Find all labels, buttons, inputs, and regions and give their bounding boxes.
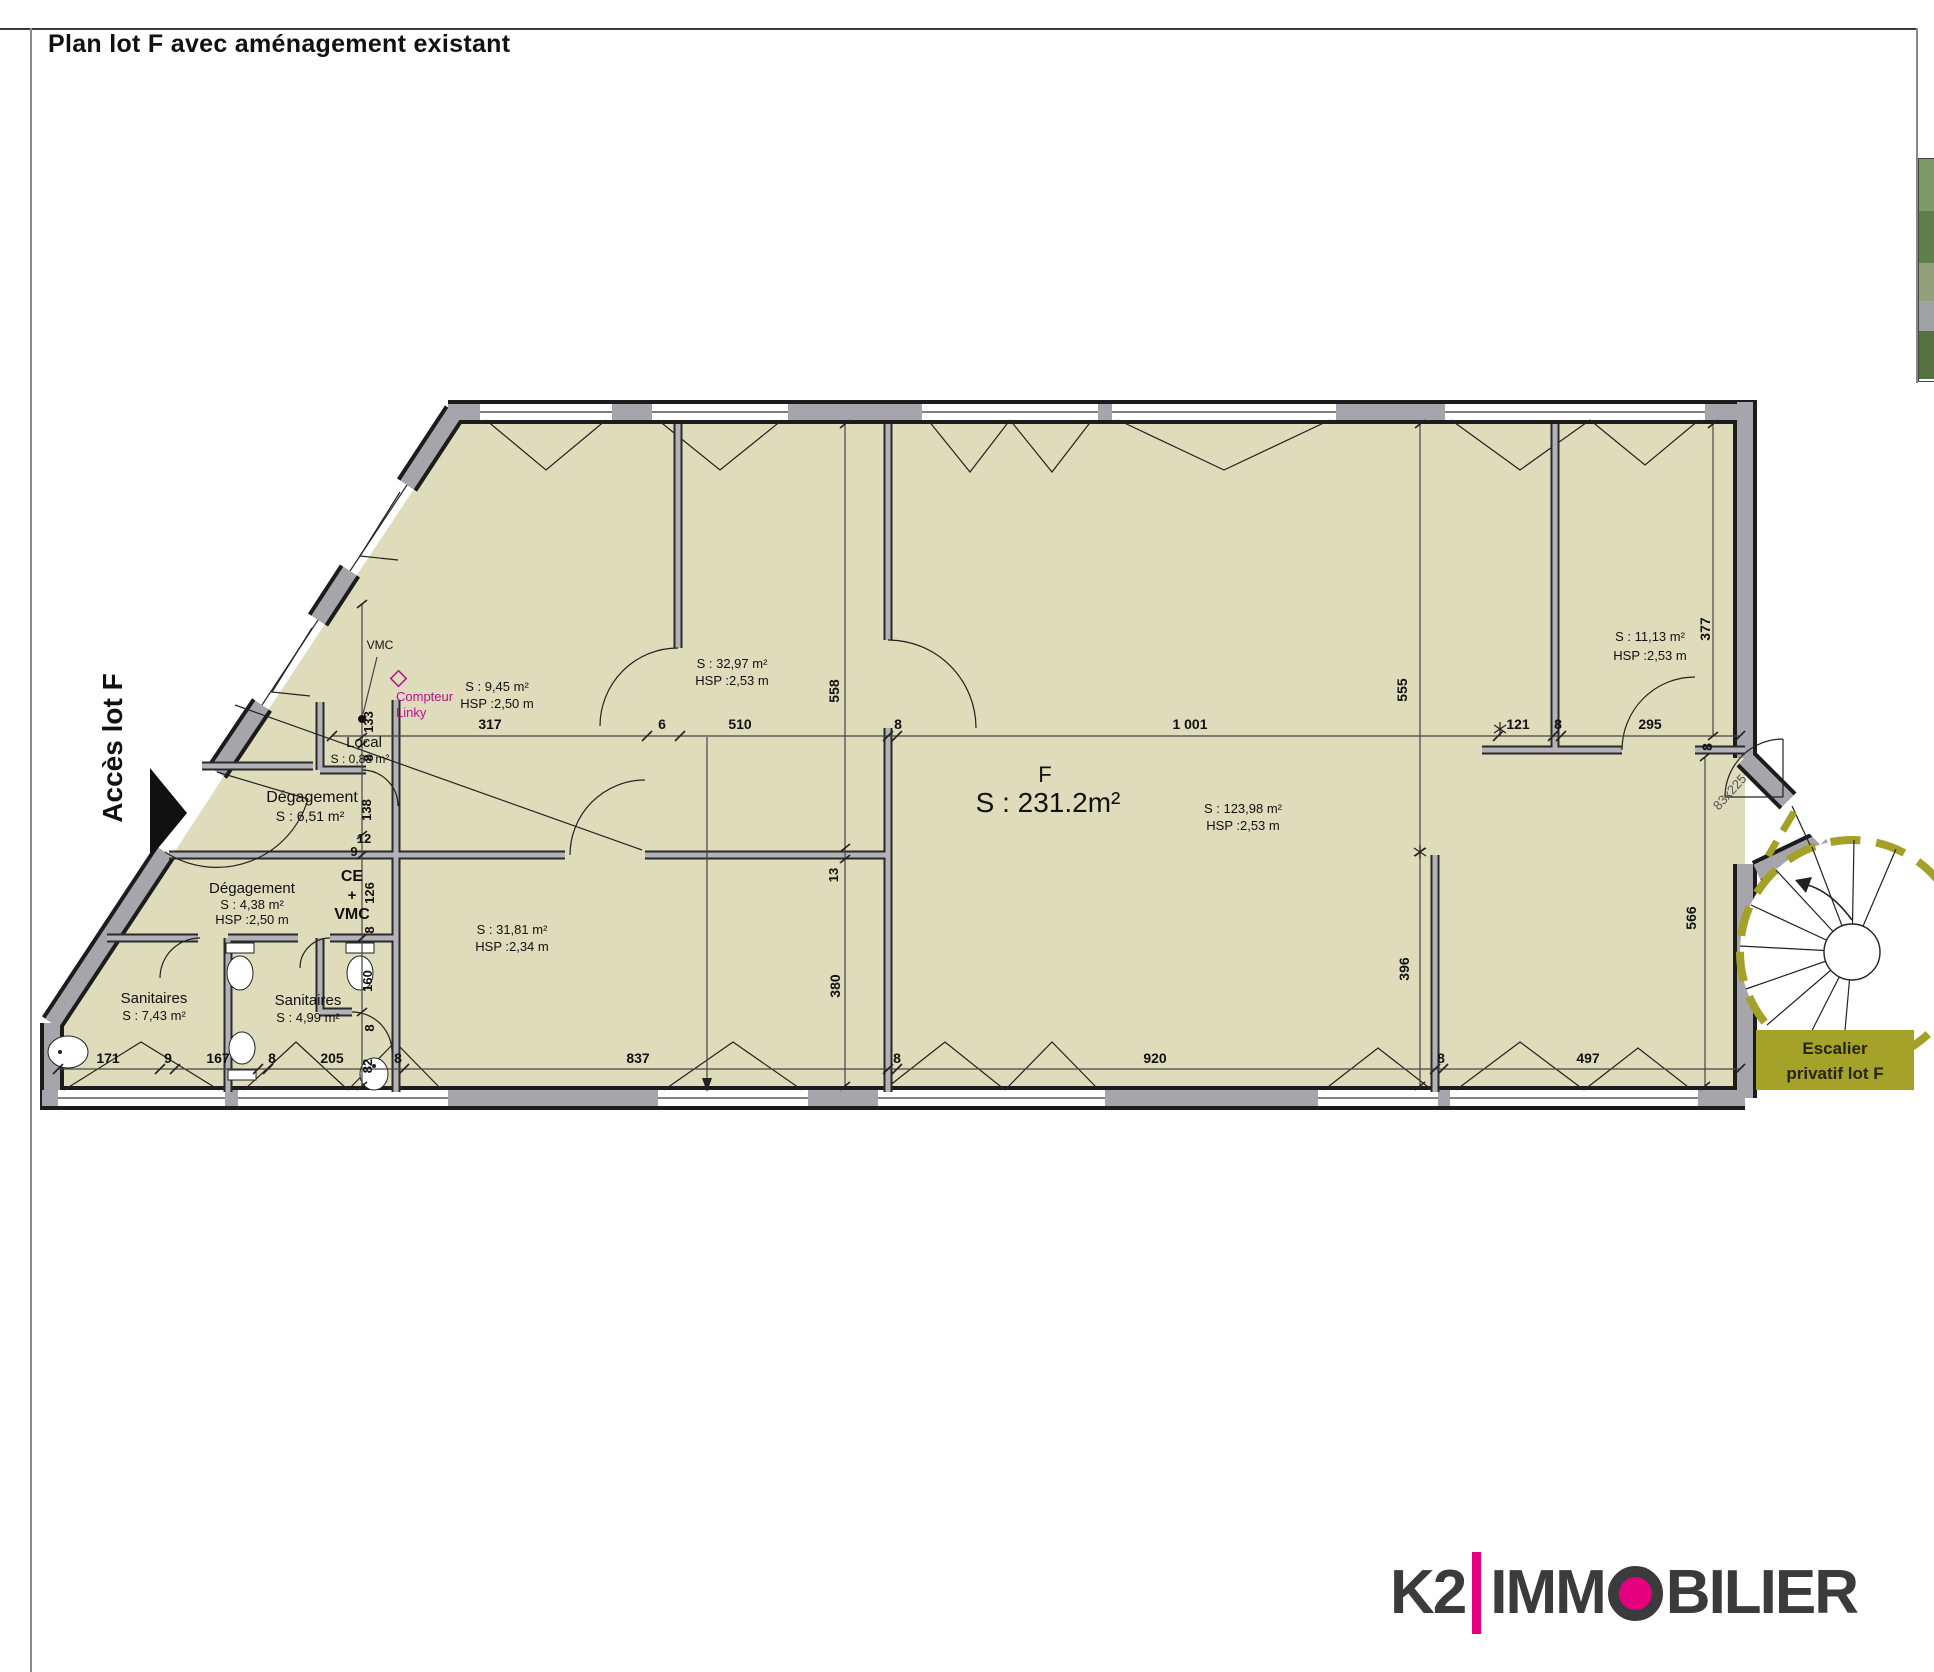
compteur-linky-2: Linky xyxy=(396,705,427,720)
dim-12: 12 xyxy=(357,831,371,846)
dim-8h: 8 xyxy=(361,754,376,761)
dim-160: 160 xyxy=(360,970,375,992)
dim-82: 82 xyxy=(360,1059,375,1073)
dim-9a: 9 xyxy=(164,1050,172,1066)
dim-1001: 1 001 xyxy=(1172,716,1207,732)
dim-295: 295 xyxy=(1638,716,1662,732)
dim-121: 121 xyxy=(1506,716,1530,732)
room-ce-label: CE xyxy=(341,868,364,885)
dim-8f: 8 xyxy=(893,1050,901,1066)
dim-8a: 8 xyxy=(894,716,902,732)
dim-13: 13 xyxy=(826,868,841,882)
dim-920: 920 xyxy=(1143,1050,1167,1066)
room-945-area: S : 9,45 m² xyxy=(465,679,529,694)
dim-377: 377 xyxy=(1697,617,1713,641)
dim-8d: 8 xyxy=(268,1050,276,1066)
room-12398-area: S : 123,98 m² xyxy=(1204,801,1283,816)
dim-8e: 8 xyxy=(394,1050,402,1066)
sink-icon xyxy=(48,1036,88,1068)
logo-pink-bar xyxy=(1472,1552,1481,1634)
dim-167: 167 xyxy=(206,1050,230,1066)
dim-138: 138 xyxy=(359,799,374,821)
room-3181-area: S : 31,81 m² xyxy=(477,922,548,937)
access-label: Accès lot F xyxy=(97,673,128,822)
room-degagement2-area: S : 4,38 m² xyxy=(220,897,284,912)
logo-imm: IMM xyxy=(1490,1562,1605,1624)
logo-bilier: BILIER xyxy=(1666,1562,1857,1624)
lot-letter: F xyxy=(1038,762,1051,787)
logo-k2: K2 xyxy=(1390,1562,1465,1624)
dim-8i: 8 xyxy=(362,926,377,933)
floor-plan-drawing: Accès lot FLocalS : 0,88 m²DégagementS :… xyxy=(0,0,1934,1672)
room-3297-hsp: HSP :2,53 m xyxy=(695,673,768,688)
room-1113-area: S : 11,13 m² xyxy=(1615,629,1686,644)
stair-label-line2: privatif lot F xyxy=(1756,1062,1914,1087)
room-945-hsp: HSP :2,50 m xyxy=(460,696,533,711)
logo-pink-o-icon xyxy=(1608,1566,1663,1621)
room-degagement2-name: Dégagement xyxy=(209,880,296,897)
dim-497: 497 xyxy=(1576,1050,1600,1066)
dim-8c: 8 xyxy=(1699,743,1715,751)
floor-plan-page: { "page": { "title": "Plan lot F avec am… xyxy=(0,0,1934,1672)
room-vmc-label: VMC xyxy=(334,906,370,923)
stair-label-line1: Escalier xyxy=(1756,1037,1914,1062)
toilet-icon xyxy=(228,1032,256,1080)
dim-837: 837 xyxy=(626,1050,650,1066)
room-local-name: Local xyxy=(346,734,382,751)
compteur-linky-1: Compteur xyxy=(396,689,454,704)
room-sanitaires2-area: S : 4,99 m² xyxy=(276,1010,340,1025)
dim-396: 396 xyxy=(1396,957,1412,981)
dim-317: 317 xyxy=(478,716,502,732)
dim-6: 6 xyxy=(658,716,666,732)
dim-9b: 9 xyxy=(350,844,357,859)
room-sanitaires2-name: Sanitaires xyxy=(275,992,342,1009)
k2-immobilier-logo: K2 IMM BILIER xyxy=(1390,1552,1857,1634)
dim-8j: 8 xyxy=(362,1024,377,1031)
room-degagement1-name: Dégagement xyxy=(266,789,358,806)
room-degagement2-hsp: HSP :2,50 m xyxy=(215,912,288,927)
room-sanitaires1-area: S : 7,43 m² xyxy=(122,1008,186,1023)
dim-205: 205 xyxy=(320,1050,344,1066)
dim-171: 171 xyxy=(96,1050,120,1066)
dim-510: 510 xyxy=(728,716,752,732)
dim-8b: 8 xyxy=(1554,716,1562,732)
dim-133: 133 xyxy=(361,711,376,733)
room-12398-hsp: HSP :2,53 m xyxy=(1206,818,1279,833)
stair-private-label: Escalier privatif lot F xyxy=(1756,1030,1914,1090)
dim-558: 558 xyxy=(826,679,842,703)
spiral-staircase-icon xyxy=(1740,806,1934,1064)
room-sanitaires1-name: Sanitaires xyxy=(121,990,188,1007)
dim-8g: 8 xyxy=(1437,1050,1445,1066)
vmc-duct-label: VMC xyxy=(367,638,394,652)
dim-126: 126 xyxy=(362,882,377,904)
room-local-area: S : 0,88 m² xyxy=(331,752,390,766)
room-degagement1-area: S : 6,51 m² xyxy=(276,808,345,824)
room-3297-area: S : 32,97 m² xyxy=(697,656,768,671)
lot-area: S : 231.2m² xyxy=(976,787,1121,818)
dim-380: 380 xyxy=(827,974,843,998)
toilet-icon xyxy=(226,943,254,990)
dim-555: 555 xyxy=(1394,678,1410,702)
room-3181-hsp: HSP :2,34 m xyxy=(475,939,548,954)
room-ce-plus: + xyxy=(348,887,357,904)
room-1113-hsp: HSP :2,53 m xyxy=(1613,648,1686,663)
dim-566: 566 xyxy=(1683,906,1699,930)
